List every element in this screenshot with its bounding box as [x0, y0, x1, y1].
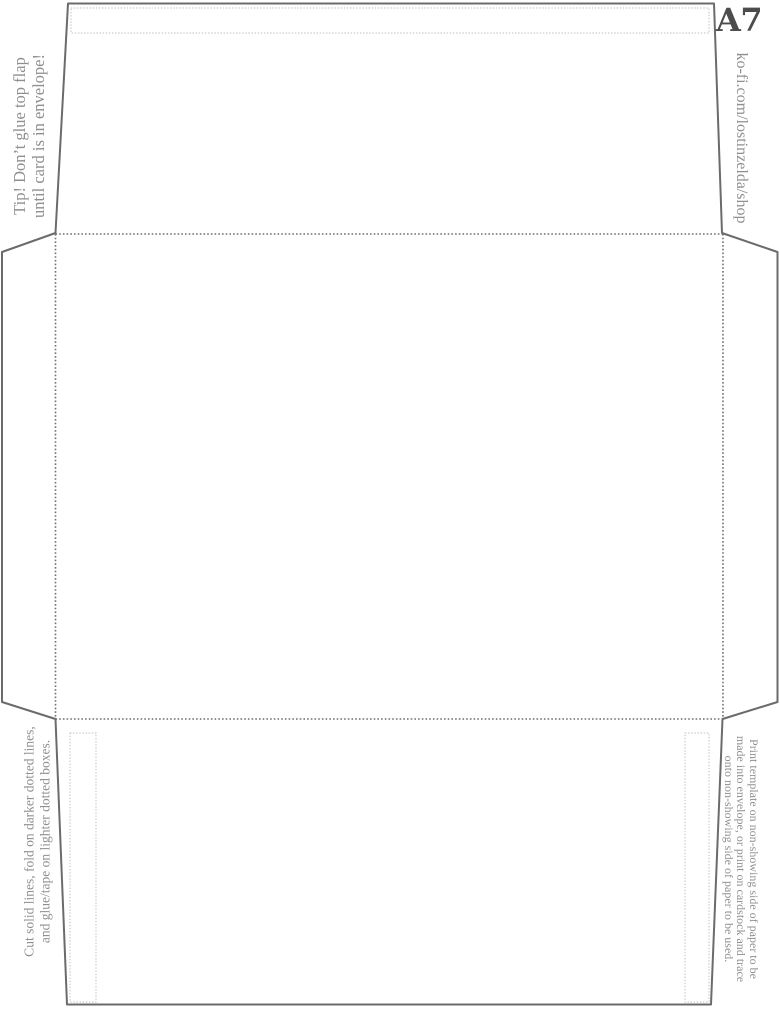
envelope-template-page: Tip! Don’t glue top flap until card is i…	[0, 0, 780, 1010]
cut-instructions-line2: and glue/tape on lighter dotted boxes.	[37, 717, 53, 967]
format-label: A7	[716, 2, 768, 40]
cut-instructions: Cut solid lines, fold on darker dotted l…	[22, 717, 53, 967]
print-instructions-line1: Print template on non-showing side of pa…	[747, 728, 760, 990]
print-instructions-line3: onto non-showing side of paper to be use…	[722, 728, 735, 990]
print-instructions-line2: made into envelope, or print on cardstoc…	[735, 728, 748, 990]
envelope-template-drawing	[0, 0, 780, 1010]
tip-note: Tip! Don’t glue top flap until card is i…	[11, 41, 49, 231]
cut-instructions-line1: Cut solid lines, fold on darker dotted l…	[22, 717, 38, 967]
tip-note-line1: Tip! Don’t glue top flap	[11, 41, 30, 231]
shop-url: ko-fi.com/lostinzelda/shop	[731, 38, 751, 238]
envelope-cut-outline	[2, 4, 778, 1005]
tip-note-line2: until card is in envelope!	[30, 41, 49, 231]
print-instructions: Print template on non-showing side of pa…	[722, 728, 760, 990]
